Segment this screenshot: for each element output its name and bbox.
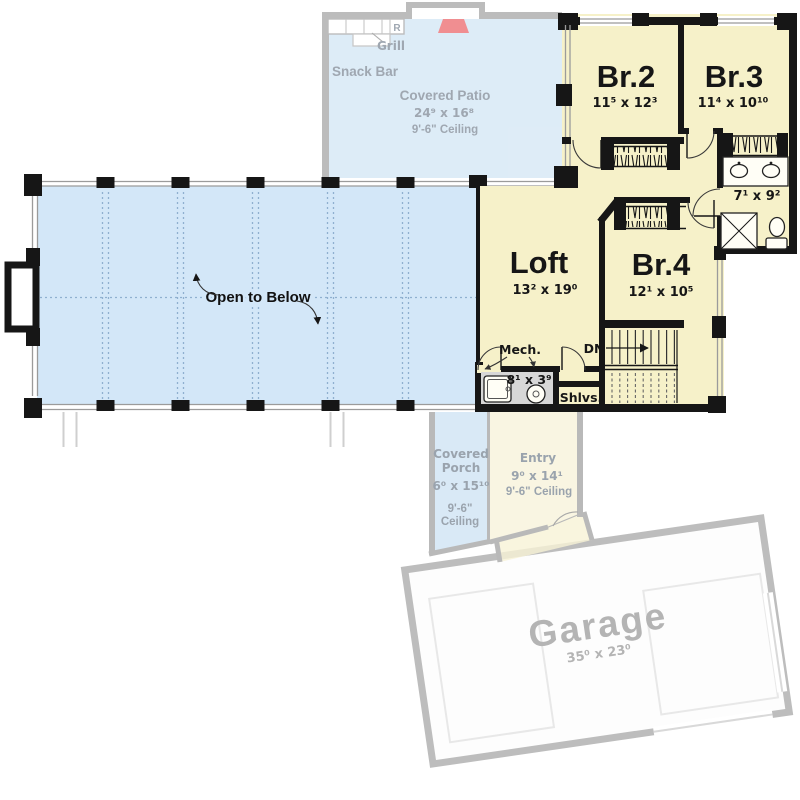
ghost-covered-patio: R Grill Snack Bar Covered Patio 24⁹ x 16… (322, 2, 562, 190)
snack-bar-label: Snack Bar (332, 64, 399, 79)
entry-ceiling: 9'-6" Ceiling (506, 486, 572, 498)
porch-ceiling-2: Ceiling (441, 516, 479, 528)
stairs-dn-label: DN (584, 341, 605, 356)
loft-railing (476, 186, 480, 366)
floor-plan: R Grill Snack Bar Covered Patio 24⁹ x 16… (0, 0, 800, 800)
grill-icon (438, 19, 469, 33)
porch-label-1: Covered (433, 447, 489, 461)
porch-dims: 6⁰ x 15¹⁰ (433, 479, 490, 493)
patio-label: Covered Patio (400, 88, 491, 103)
open-to-below-label: Open to Below (206, 289, 311, 306)
mech-dims: 8¹ x 3⁹ (506, 372, 551, 387)
fireplace (8, 265, 36, 329)
br4-label: Br.4 (632, 247, 691, 282)
toilet-tank (766, 238, 787, 249)
sink-left (731, 165, 748, 178)
porch-ceiling-1: 9'-6" (448, 503, 473, 515)
loft-label: Loft (510, 245, 569, 280)
br3-dims: 11⁴ x 10¹⁰ (698, 96, 769, 111)
entry-dims: 9⁰ x 14¹ (511, 469, 563, 483)
grill-label: Grill (377, 39, 405, 53)
porch-label-2: Porch (442, 461, 481, 475)
mech-label: Mech. (499, 342, 541, 357)
br4-closet (614, 203, 686, 230)
floor-plan-page: R Grill Snack Bar Covered Patio 24⁹ x 16… (0, 0, 800, 800)
sink-right (763, 165, 780, 178)
water-heater (527, 385, 545, 403)
fridge-label: R (393, 23, 401, 34)
entry-label: Entry (520, 451, 556, 465)
br4-dims: 12¹ x 10⁵ (628, 285, 693, 300)
br2-label: Br.2 (597, 59, 656, 94)
br3-label: Br.3 (705, 59, 764, 94)
bath-dims: 7¹ x 9² (734, 189, 781, 204)
patio-dims: 24⁹ x 16⁸ (414, 106, 474, 120)
shelves-label: Shlvs. (560, 390, 603, 405)
toilet-bowl (770, 218, 785, 237)
loft-dims: 13² x 19⁰ (512, 283, 577, 298)
patio-ceiling: 9'-6" Ceiling (412, 124, 478, 136)
br2-closet (601, 143, 680, 170)
br2-dims: 11⁵ x 12³ (592, 96, 657, 111)
covered-porch: Covered Porch 6⁰ x 15¹⁰ 9'-6" Ceiling (429, 412, 493, 555)
